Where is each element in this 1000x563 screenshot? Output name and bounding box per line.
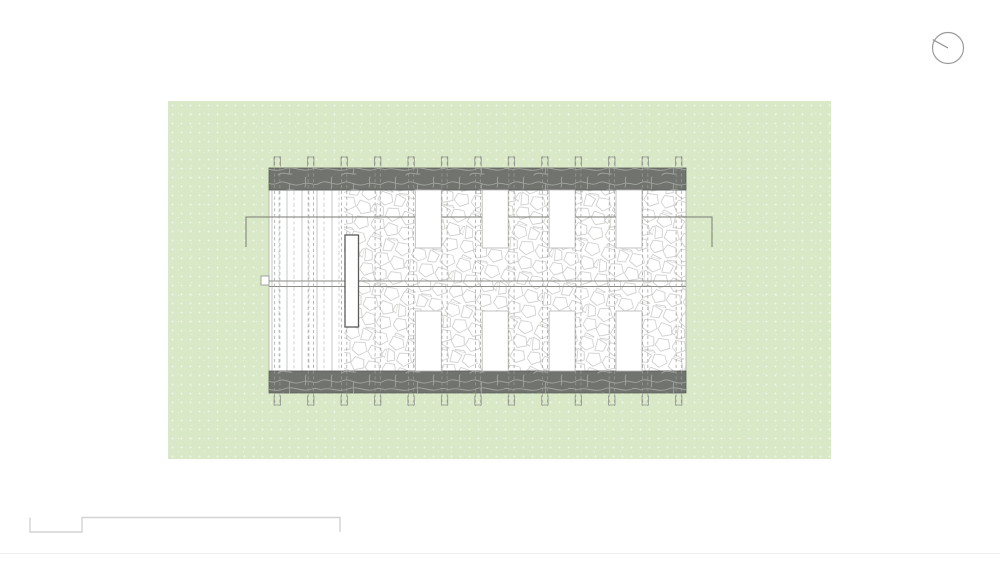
room-cell — [616, 190, 642, 248]
bench-element — [345, 235, 359, 327]
room-cell — [549, 311, 575, 371]
room-cell — [482, 311, 508, 371]
room-cell — [415, 190, 441, 248]
scale-bar — [30, 518, 340, 533]
sheet — [0, 0, 1000, 563]
floor-plan — [246, 156, 712, 406]
room-cell — [415, 311, 441, 371]
room-cell — [549, 190, 575, 248]
room-cell — [482, 190, 508, 248]
north-dial-icon — [933, 33, 964, 64]
room-cell — [616, 311, 642, 371]
drawing-canvas — [0, 0, 1000, 563]
